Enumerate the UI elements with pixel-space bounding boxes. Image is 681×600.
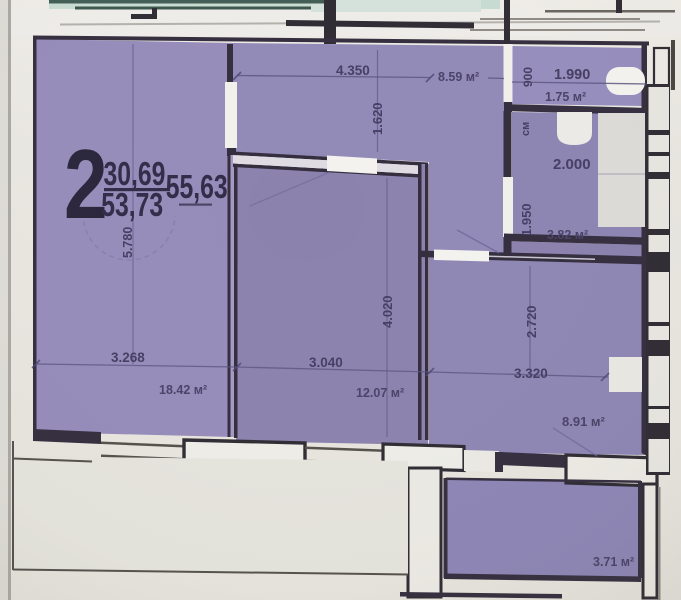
svg-text:4.020: 4.020 bbox=[380, 295, 395, 328]
svg-text:3.82 м²: 3.82 м² bbox=[547, 228, 588, 242]
svg-text:см: см bbox=[520, 122, 532, 136]
svg-text:5.780: 5.780 bbox=[121, 227, 135, 258]
svg-text:1.950: 1.950 bbox=[519, 203, 534, 236]
svg-text:3.320: 3.320 bbox=[514, 366, 548, 381]
svg-text:1.620: 1.620 bbox=[370, 102, 385, 135]
svg-text:55,63: 55,63 bbox=[166, 170, 228, 206]
svg-text:900: 900 bbox=[521, 67, 535, 87]
svg-text:1.75 м²: 1.75 м² bbox=[545, 90, 586, 104]
svg-text:53,73: 53,73 bbox=[101, 188, 163, 224]
svg-text:3.71 м²: 3.71 м² bbox=[593, 555, 634, 569]
svg-text:2.720: 2.720 bbox=[524, 305, 539, 338]
svg-text:3.268: 3.268 bbox=[111, 350, 145, 365]
svg-text:4.350: 4.350 bbox=[336, 63, 370, 78]
svg-text:1.990: 1.990 bbox=[554, 67, 590, 83]
svg-text:3.040: 3.040 bbox=[309, 355, 343, 370]
svg-text:2.000: 2.000 bbox=[553, 156, 591, 173]
svg-text:12.07 м²: 12.07 м² bbox=[356, 386, 404, 400]
svg-text:18.42 м²: 18.42 м² bbox=[159, 383, 207, 397]
svg-text:8.59 м²: 8.59 м² bbox=[438, 70, 479, 84]
svg-text:8.91 м²: 8.91 м² bbox=[562, 414, 606, 429]
